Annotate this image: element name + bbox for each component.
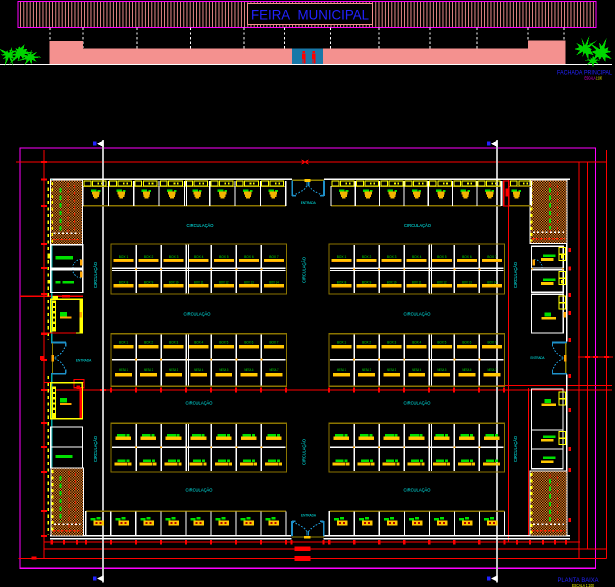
svg-text:MESA 4: MESA 4 (412, 368, 421, 372)
svg-text:BOX 10: BOX 10 (169, 280, 179, 285)
svg-text:MESA 2: MESA 2 (144, 368, 153, 372)
svg-text:MESA 1: MESA 1 (337, 368, 346, 372)
svg-text:1:100: 1:100 (596, 75, 602, 80)
svg-text:MESA 3: MESA 3 (387, 368, 396, 372)
svg-text:BOX 4: BOX 4 (412, 254, 422, 259)
svg-text:BOX 2: BOX 2 (144, 254, 154, 259)
svg-text:BOX 6: BOX 6 (462, 341, 471, 345)
svg-text:CIRCULAÇÃO: CIRCULAÇÃO (93, 435, 98, 462)
svg-text:BOX 6: BOX 6 (244, 254, 254, 259)
svg-text:ESCALA: ESCALA (585, 75, 596, 80)
svg-text:BOX 13: BOX 13 (462, 280, 472, 285)
svg-text:ESCALA 1:100: ESCALA 1:100 (572, 583, 594, 587)
svg-text:CIRCULAÇÃO: CIRCULAÇÃO (186, 401, 214, 406)
svg-text:BOX 10: BOX 10 (387, 280, 397, 285)
svg-text:MESA 7: MESA 7 (269, 368, 278, 372)
svg-text:BOX 13: BOX 13 (244, 280, 254, 285)
svg-text:CIRCULAÇÃO: CIRCULAÇÃO (513, 261, 518, 288)
svg-text:BOX 2: BOX 2 (362, 254, 372, 259)
svg-text:CIRCULAÇÃO: CIRCULAÇÃO (302, 438, 307, 465)
svg-text:MESA 3: MESA 3 (169, 368, 178, 372)
svg-text:CIRCULAÇÃO: CIRCULAÇÃO (184, 312, 212, 317)
svg-text:MESA 5: MESA 5 (437, 368, 446, 372)
svg-text:BOX 3: BOX 3 (387, 341, 396, 345)
svg-text:BOX 4: BOX 4 (194, 254, 204, 259)
svg-text:BOX 8: BOX 8 (119, 280, 129, 285)
svg-text:BOX 5: BOX 5 (437, 341, 446, 345)
svg-text:ENTRADA: ENTRADA (301, 513, 316, 518)
svg-text:ENTRADA: ENTRADA (76, 358, 92, 363)
svg-text:CIRCULAÇÃO: CIRCULAÇÃO (302, 256, 307, 283)
svg-text:BOX 11: BOX 11 (194, 280, 204, 285)
svg-text:BOX 7: BOX 7 (269, 341, 278, 345)
svg-text:BOX 5: BOX 5 (219, 254, 229, 259)
svg-text:MESA 2: MESA 2 (362, 368, 371, 372)
svg-text:CIRCULAÇÃO: CIRCULAÇÃO (404, 312, 432, 317)
svg-text:BOX 2: BOX 2 (362, 341, 371, 345)
svg-text:BOX 2: BOX 2 (144, 341, 153, 345)
svg-text:BOX 12: BOX 12 (437, 280, 447, 285)
svg-text:BOX 8: BOX 8 (337, 280, 347, 285)
svg-text:BOX 11: BOX 11 (412, 280, 422, 285)
svg-text:BOX 1: BOX 1 (337, 341, 346, 345)
svg-text:CIRCULAÇÃO: CIRCULAÇÃO (404, 401, 432, 406)
svg-text:MESA 5: MESA 5 (219, 368, 228, 372)
svg-text:MESA 1: MESA 1 (119, 368, 128, 372)
svg-text:CIRCULAÇÃO: CIRCULAÇÃO (186, 488, 214, 493)
svg-text:BOX 5: BOX 5 (437, 254, 447, 259)
svg-text:ENTRADA: ENTRADA (301, 200, 316, 205)
svg-text:BOX 7: BOX 7 (269, 254, 279, 259)
svg-text:BOX 1: BOX 1 (337, 254, 347, 259)
svg-text:MESA 4: MESA 4 (194, 368, 203, 372)
svg-text:CIRCULAÇÃO: CIRCULAÇÃO (404, 488, 432, 493)
svg-text:CIRCULAÇÃO: CIRCULAÇÃO (404, 223, 432, 228)
svg-text:BOX 1: BOX 1 (119, 341, 128, 345)
svg-text:BOX 7: BOX 7 (487, 254, 497, 259)
svg-text:BOX 9: BOX 9 (362, 280, 372, 285)
svg-text:BOX 6: BOX 6 (244, 341, 253, 345)
svg-text:FEIRA MUNICIPAL: FEIRA MUNICIPAL (251, 7, 369, 23)
svg-text:BOX 7: BOX 7 (487, 341, 496, 345)
svg-text:MESA 6: MESA 6 (244, 368, 253, 372)
svg-text:BOX 14: BOX 14 (487, 280, 497, 285)
svg-text:BOX 4: BOX 4 (412, 341, 421, 345)
svg-text:BOX 3: BOX 3 (387, 254, 397, 259)
svg-text:BOX 3: BOX 3 (169, 341, 178, 345)
svg-text:BOX 12: BOX 12 (219, 280, 229, 285)
svg-text:CIRCULAÇÃO: CIRCULAÇÃO (93, 261, 98, 288)
svg-text:BOX 3: BOX 3 (169, 254, 179, 259)
svg-text:ENTRADA: ENTRADA (531, 355, 545, 360)
svg-text:MESA 6: MESA 6 (462, 368, 471, 372)
svg-text:CIRCULAÇÃO: CIRCULAÇÃO (187, 223, 215, 228)
svg-text:BOX 6: BOX 6 (462, 254, 472, 259)
svg-text:BOX 1: BOX 1 (119, 254, 129, 259)
svg-text:MESA 7: MESA 7 (487, 368, 496, 372)
svg-text:CIRCULAÇÃO: CIRCULAÇÃO (513, 435, 518, 462)
svg-text:BOX 5: BOX 5 (219, 341, 228, 345)
svg-text:BOX 9: BOX 9 (144, 280, 154, 285)
svg-text:BOX 14: BOX 14 (269, 280, 279, 285)
svg-text:BOX 4: BOX 4 (194, 341, 203, 345)
